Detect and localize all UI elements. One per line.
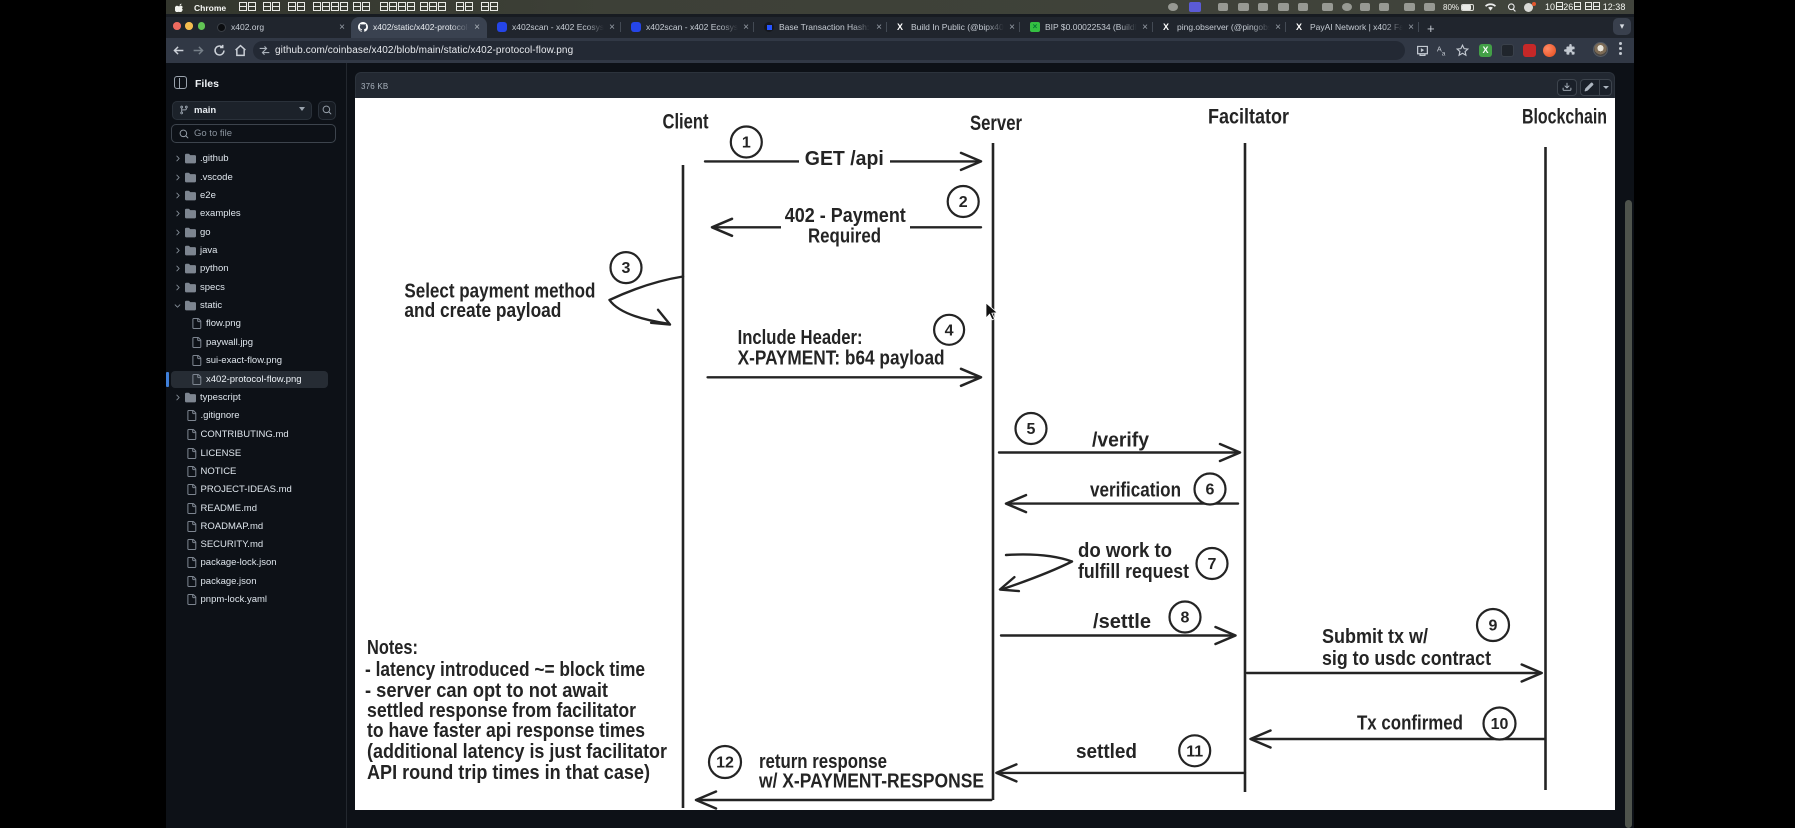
svg-text:12: 12	[716, 754, 734, 771]
svg-text:Tx confirmed: Tx confirmed	[1357, 712, 1463, 734]
svg-text:Blockchain: Blockchain	[1522, 105, 1607, 128]
svg-text:Include Header:: Include Header:	[738, 326, 863, 348]
svg-text:4: 4	[945, 322, 954, 339]
svg-text:- server can opt to not await: - server can opt to not await	[365, 680, 608, 702]
svg-text:- latency introduced ~= block: - latency introduced ~= block time	[365, 659, 645, 681]
svg-text:7: 7	[1208, 556, 1217, 573]
svg-text:settled response from facilita: settled response from facilitator	[367, 700, 636, 722]
svg-text:and create payload: and create payload	[404, 300, 561, 322]
svg-text:5: 5	[1027, 421, 1036, 438]
svg-text:fulfill request: fulfill request	[1078, 560, 1189, 582]
svg-text:(additional latency is just fa: (additional latency is just facilitator	[367, 741, 667, 763]
svg-text:X-PAYMENT: b64 payload: X-PAYMENT: b64 payload	[738, 347, 945, 369]
svg-text:a: a	[1442, 50, 1446, 57]
svg-text:do work to: do work to	[1078, 539, 1172, 561]
svg-text:/settle: /settle	[1093, 611, 1151, 633]
svg-text:Notes:: Notes:	[367, 637, 418, 659]
svg-text:/verify: /verify	[1092, 429, 1150, 451]
svg-text:Required: Required	[808, 225, 881, 247]
svg-text:2: 2	[959, 194, 968, 211]
svg-text:Server: Server	[970, 112, 1022, 135]
svg-text:402 - Payment: 402 - Payment	[785, 205, 906, 227]
svg-text:verification: verification	[1090, 479, 1181, 501]
svg-text:Faciltator: Faciltator	[1208, 105, 1289, 128]
svg-text:3: 3	[622, 260, 631, 277]
svg-text:6: 6	[1206, 481, 1215, 498]
svg-text:8: 8	[1181, 609, 1190, 626]
svg-text:sig to usdc contract: sig to usdc contract	[1322, 648, 1491, 670]
svg-text:1: 1	[742, 134, 751, 151]
svg-text:11: 11	[1186, 743, 1203, 760]
svg-text:Select payment method: Select payment method	[404, 280, 595, 302]
svg-text:Client: Client	[663, 110, 709, 133]
svg-text:Submit tx w/: Submit tx w/	[1322, 626, 1428, 648]
svg-text:9: 9	[1489, 617, 1498, 634]
svg-text:w/ X-PAYMENT-RESPONSE: w/ X-PAYMENT-RESPONSE	[758, 770, 984, 792]
svg-text:API round trip times in that c: API round trip times in that case)	[367, 762, 650, 784]
svg-text:GET /api: GET /api	[805, 148, 884, 170]
svg-text:10: 10	[1491, 716, 1509, 733]
svg-text:settled: settled	[1076, 740, 1137, 762]
svg-text:to have faster api response ti: to have faster api response times	[367, 720, 645, 742]
